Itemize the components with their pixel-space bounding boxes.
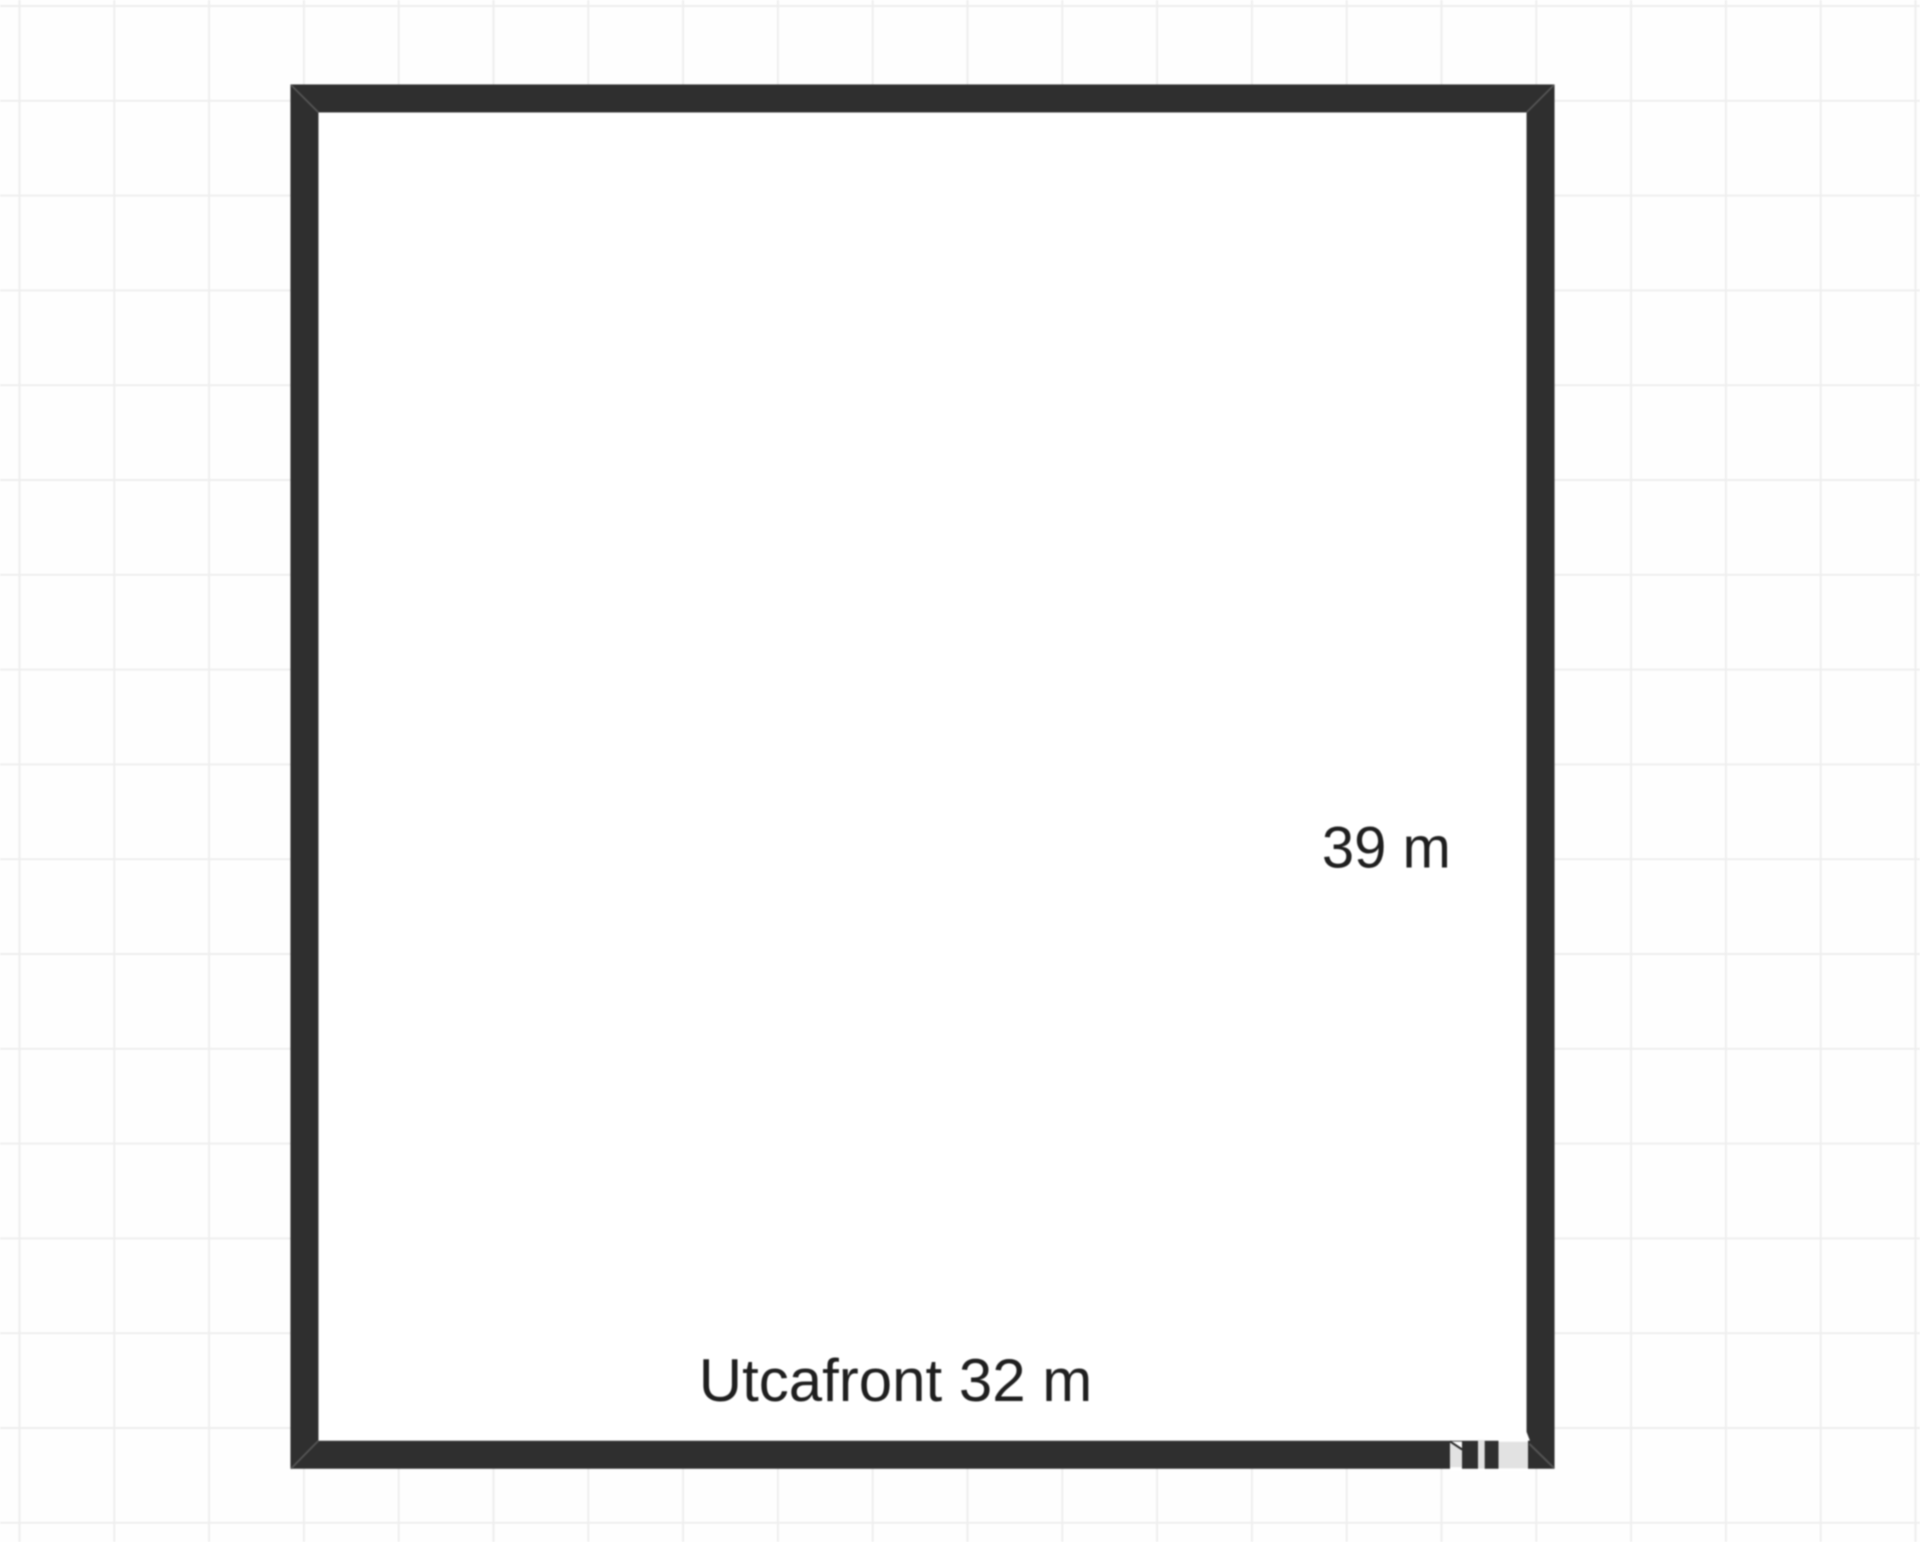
- svg-text:39 m: 39 m: [1322, 816, 1451, 881]
- svg-text:Utcafront 32 m: Utcafront 32 m: [699, 1347, 1093, 1414]
